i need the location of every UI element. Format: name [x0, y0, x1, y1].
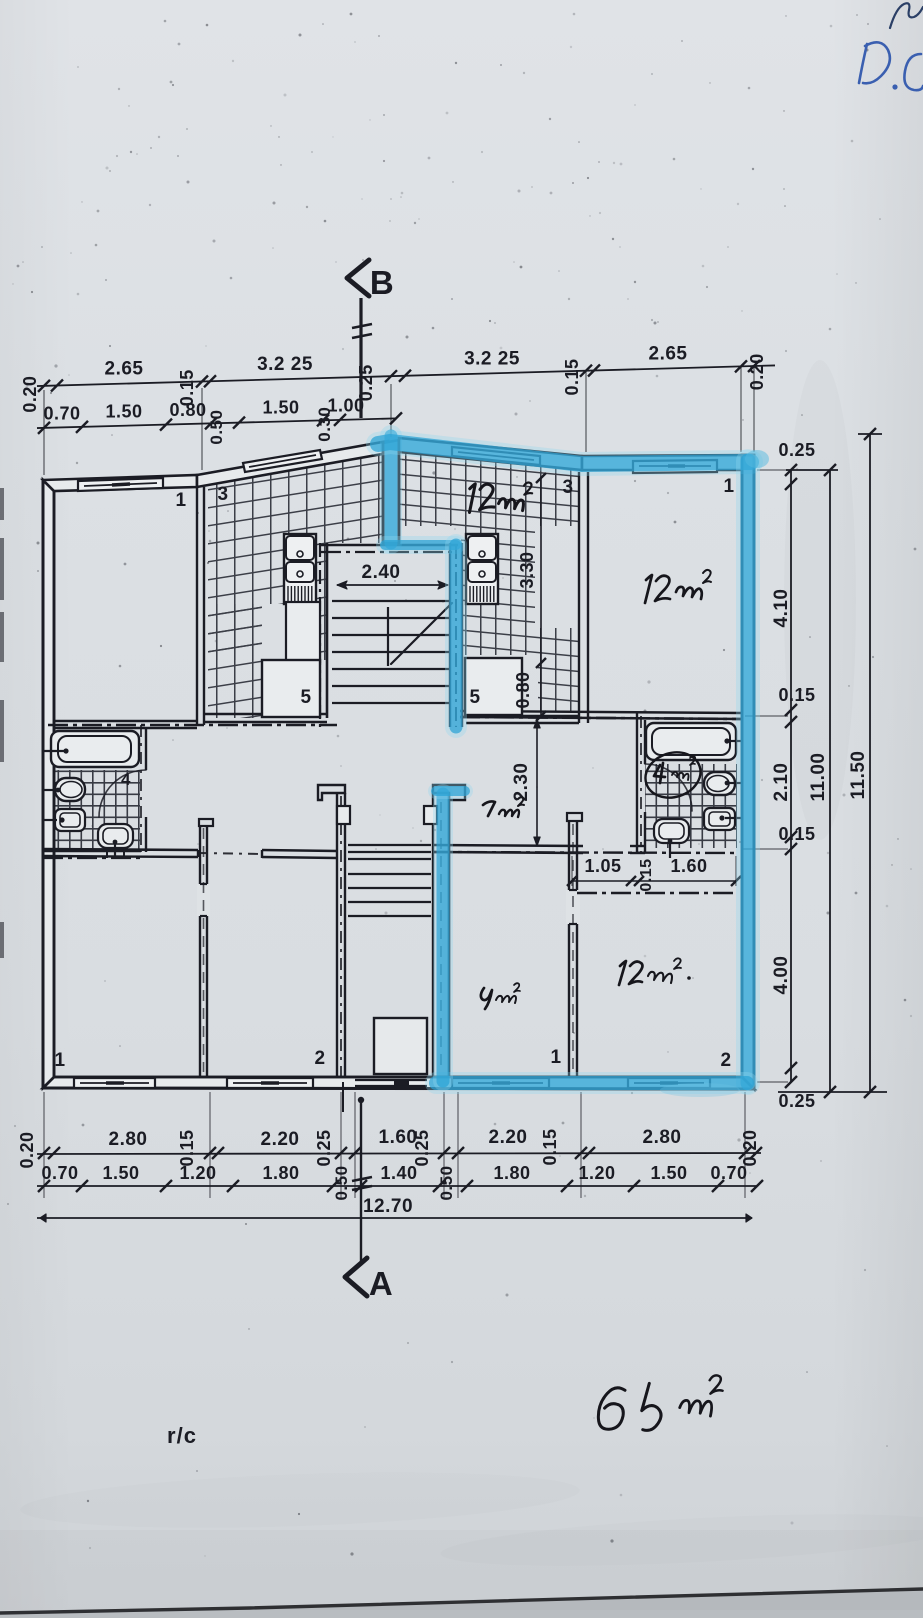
svg-text:0.70: 0.70: [710, 1163, 747, 1183]
svg-text:2.65: 2.65: [649, 343, 688, 364]
svg-text:1.00: 1.00: [327, 396, 364, 416]
svg-text:1: 1: [175, 490, 186, 511]
svg-text:11.00: 11.00: [808, 753, 829, 802]
svg-text:A: A: [369, 1265, 393, 1302]
svg-text:5: 5: [300, 687, 311, 708]
svg-text:1.40: 1.40: [380, 1163, 417, 1183]
svg-text:1.50: 1.50: [102, 1163, 139, 1183]
svg-text:0.15: 0.15: [177, 1129, 197, 1166]
svg-text:0.15: 0.15: [638, 858, 655, 891]
svg-text:2.20: 2.20: [261, 1129, 300, 1150]
svg-text:0.15: 0.15: [540, 1128, 560, 1165]
svg-text:0.15: 0.15: [778, 685, 815, 705]
svg-text:4.00: 4.00: [771, 956, 792, 995]
svg-text:2.40: 2.40: [362, 562, 401, 583]
svg-text:1.60: 1.60: [670, 856, 707, 876]
svg-text:0.25: 0.25: [412, 1129, 432, 1166]
svg-text:0.50: 0.50: [207, 410, 226, 445]
svg-text:1.50: 1.50: [650, 1163, 687, 1183]
svg-text:r/c: r/c: [167, 1423, 197, 1448]
svg-text:1: 1: [723, 476, 734, 497]
svg-text:0.20: 0.20: [740, 1129, 760, 1166]
svg-text:2.20: 2.20: [489, 1127, 528, 1148]
svg-text:2.80: 2.80: [643, 1127, 682, 1148]
svg-text:0.70: 0.70: [43, 403, 80, 423]
svg-text:2.30: 2.30: [511, 763, 532, 802]
svg-text:1.20: 1.20: [578, 1163, 615, 1183]
svg-text:1.80: 1.80: [493, 1163, 530, 1183]
svg-text:0.25: 0.25: [778, 440, 815, 460]
svg-text:0.15: 0.15: [562, 358, 582, 395]
svg-text:4.10: 4.10: [771, 589, 792, 628]
svg-text:0.25: 0.25: [778, 1091, 815, 1111]
svg-text:0.20: 0.20: [17, 1131, 37, 1168]
svg-text:0.25: 0.25: [314, 1129, 334, 1166]
svg-text:3: 3: [562, 477, 573, 498]
svg-text:1.50: 1.50: [105, 402, 142, 422]
svg-text:3.2 25: 3.2 25: [257, 354, 313, 375]
svg-text:0.50: 0.50: [437, 1165, 456, 1200]
svg-text:0.20: 0.20: [20, 376, 40, 413]
svg-text:1.05: 1.05: [584, 856, 621, 876]
svg-text:1.20: 1.20: [179, 1163, 216, 1183]
svg-text:1: 1: [550, 1047, 561, 1068]
svg-text:B: B: [370, 264, 394, 301]
svg-text:2: 2: [314, 1048, 325, 1069]
svg-text:3.2 25: 3.2 25: [464, 348, 520, 369]
svg-text:0.80: 0.80: [169, 400, 206, 420]
svg-text:2: 2: [720, 1050, 731, 1071]
svg-text:1.80: 1.80: [262, 1163, 299, 1183]
svg-text:3.30: 3.30: [517, 551, 537, 588]
svg-text:0.15: 0.15: [778, 824, 815, 844]
svg-text:2.10: 2.10: [771, 763, 792, 802]
svg-text:0.70: 0.70: [41, 1163, 78, 1183]
svg-text:5: 5: [469, 687, 480, 708]
svg-text:1.50: 1.50: [262, 397, 299, 417]
svg-text:1: 1: [54, 1050, 65, 1071]
svg-text:0.20: 0.20: [747, 353, 767, 390]
svg-text:2.65: 2.65: [105, 359, 144, 380]
svg-text:0.80: 0.80: [513, 671, 533, 708]
svg-text:3: 3: [217, 484, 228, 505]
svg-text:11.50: 11.50: [848, 751, 869, 800]
svg-text:12.70: 12.70: [363, 1196, 413, 1217]
svg-text:2.80: 2.80: [109, 1129, 148, 1150]
svg-text:4: 4: [121, 770, 131, 789]
